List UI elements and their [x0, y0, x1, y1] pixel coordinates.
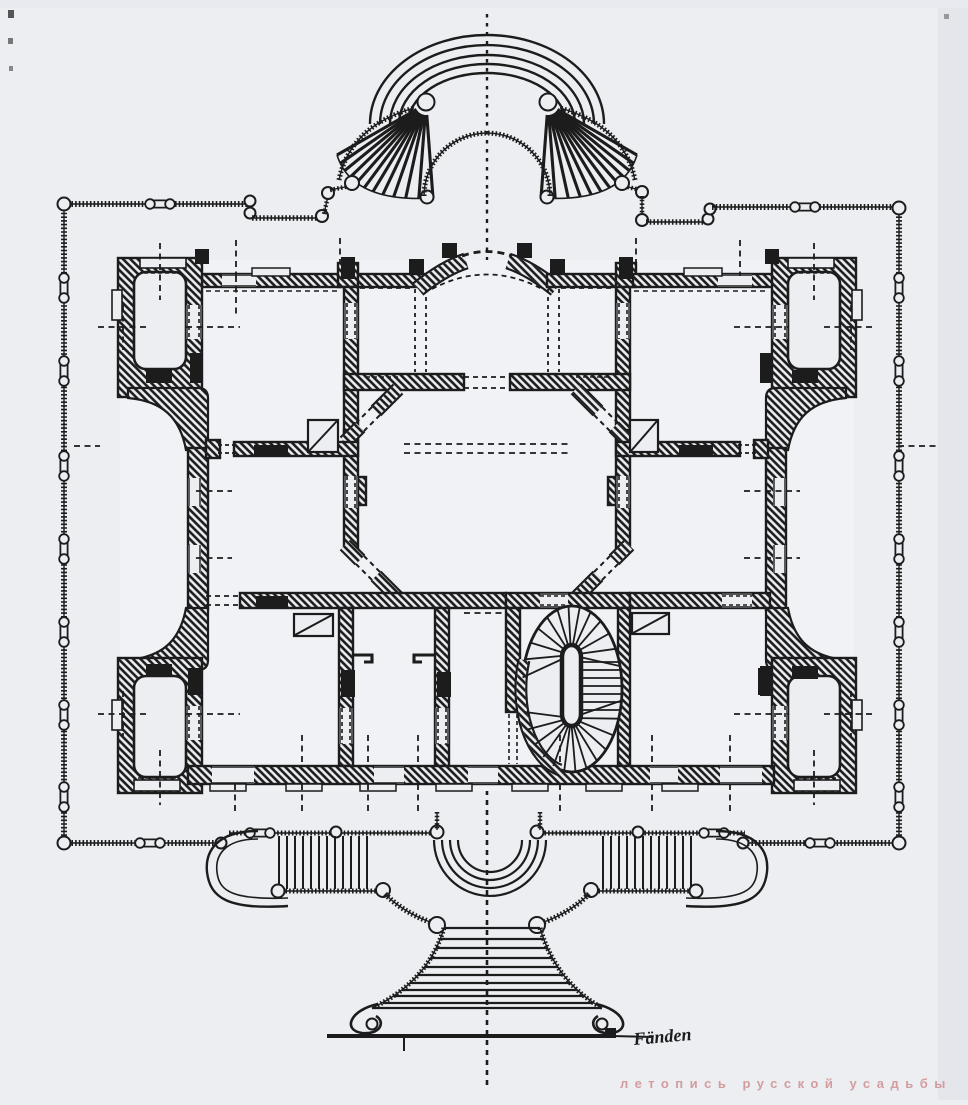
svg-text:летопись русской усадьбы: летопись русской усадьбы — [620, 1076, 952, 1091]
